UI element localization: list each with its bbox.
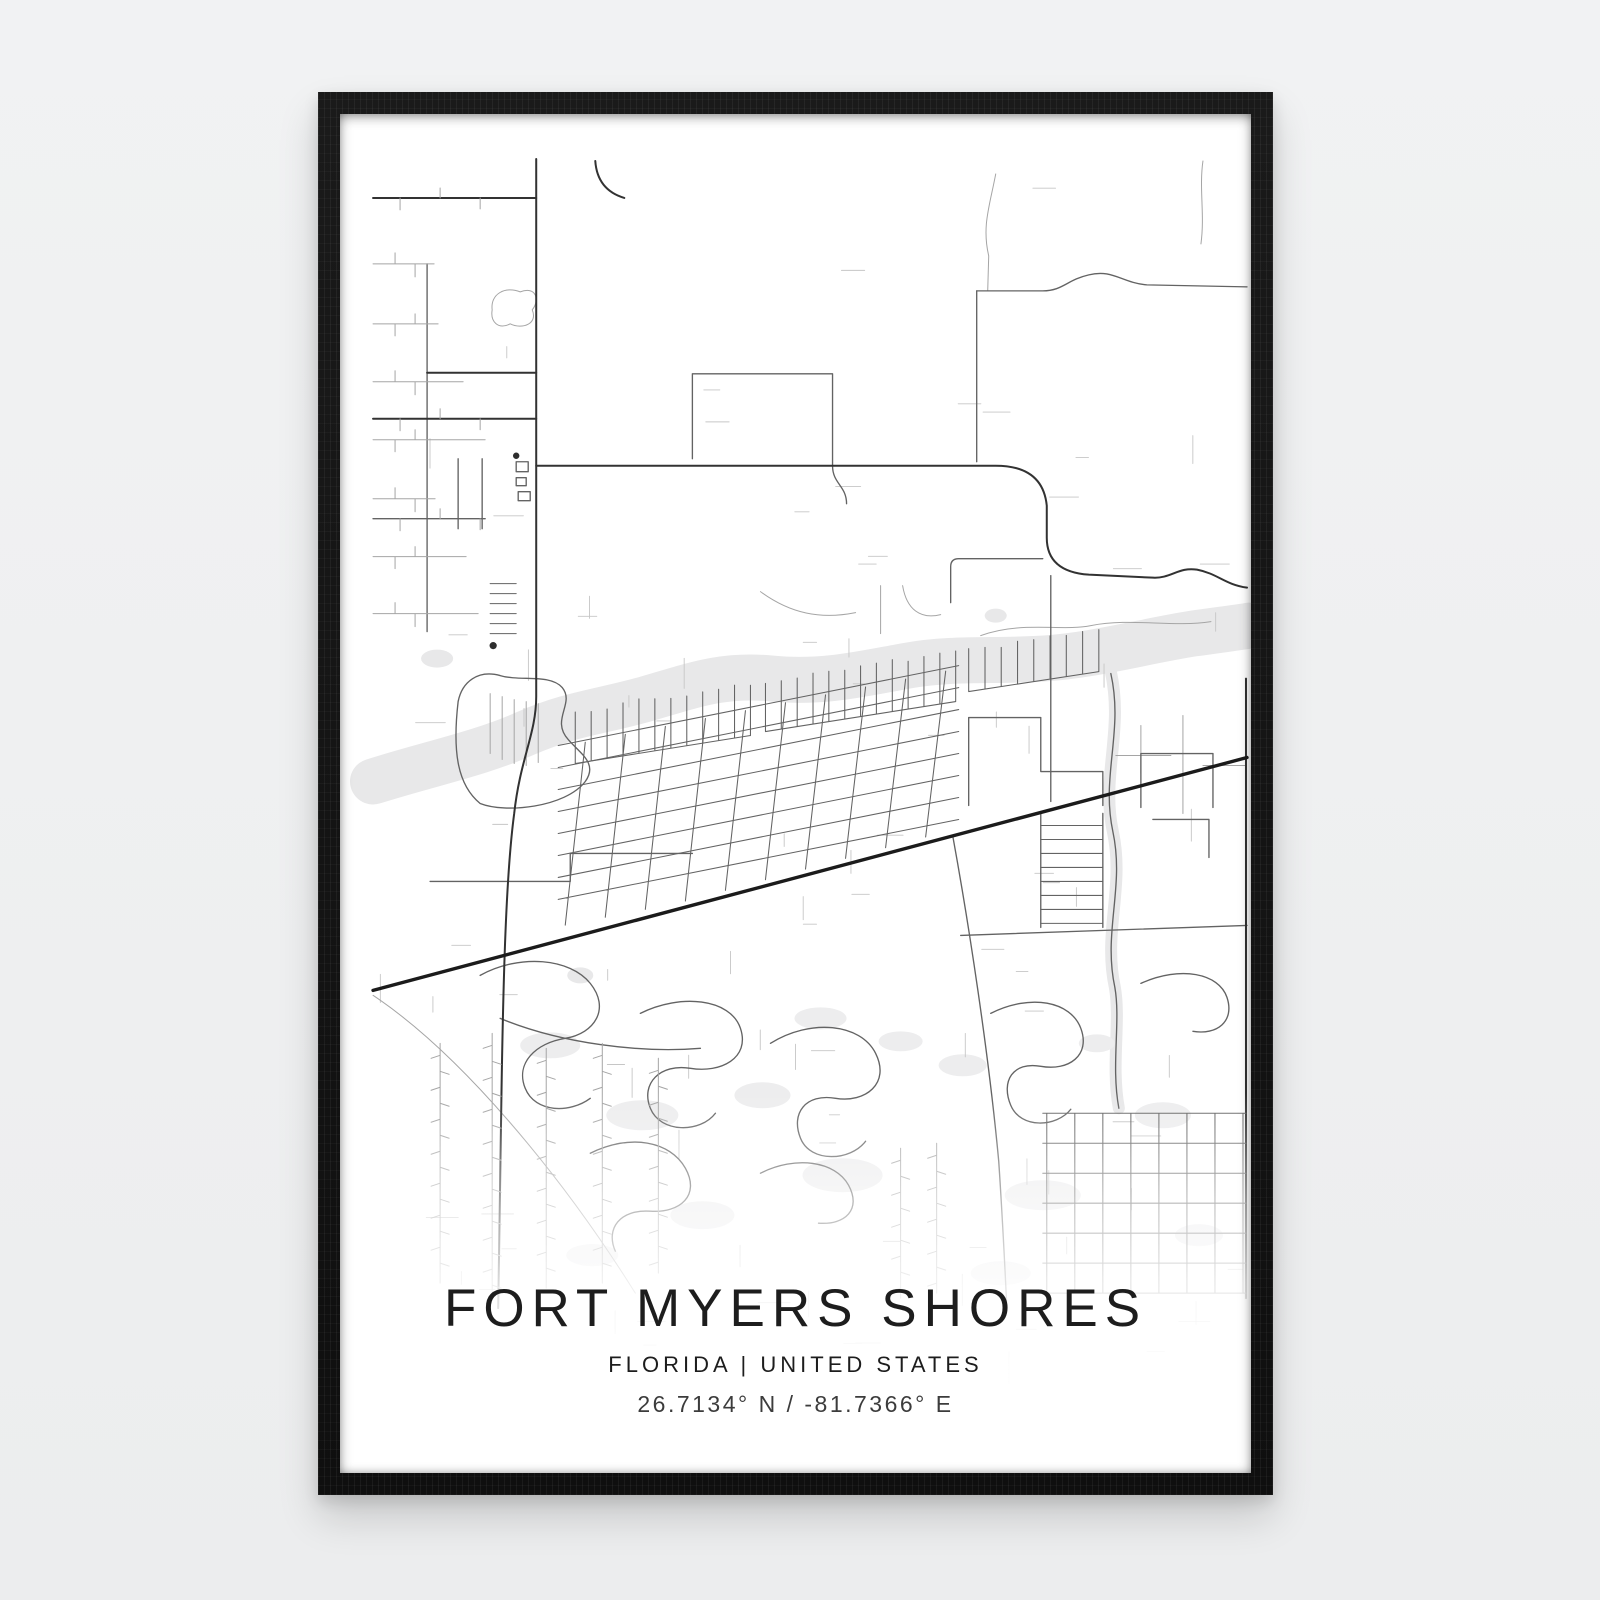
poster-caption: FORT MYERS SHORES FLORIDA | UNITED STATE… — [340, 1282, 1251, 1418]
street-map-art — [340, 114, 1251, 1473]
poster-subtitle: FLORIDA | UNITED STATES — [340, 1352, 1251, 1378]
poster-coordinates: 26.7134° N / -81.7366° E — [340, 1391, 1251, 1418]
map-poster: FORT MYERS SHORES FLORIDA | UNITED STATE… — [340, 114, 1251, 1473]
poster-frame: FORT MYERS SHORES FLORIDA | UNITED STATE… — [318, 92, 1273, 1495]
poster-title: FORT MYERS SHORES — [340, 1282, 1251, 1335]
product-photo-wall: { "poster": { "title": "FORT MYERS SHORE… — [0, 0, 1600, 1600]
